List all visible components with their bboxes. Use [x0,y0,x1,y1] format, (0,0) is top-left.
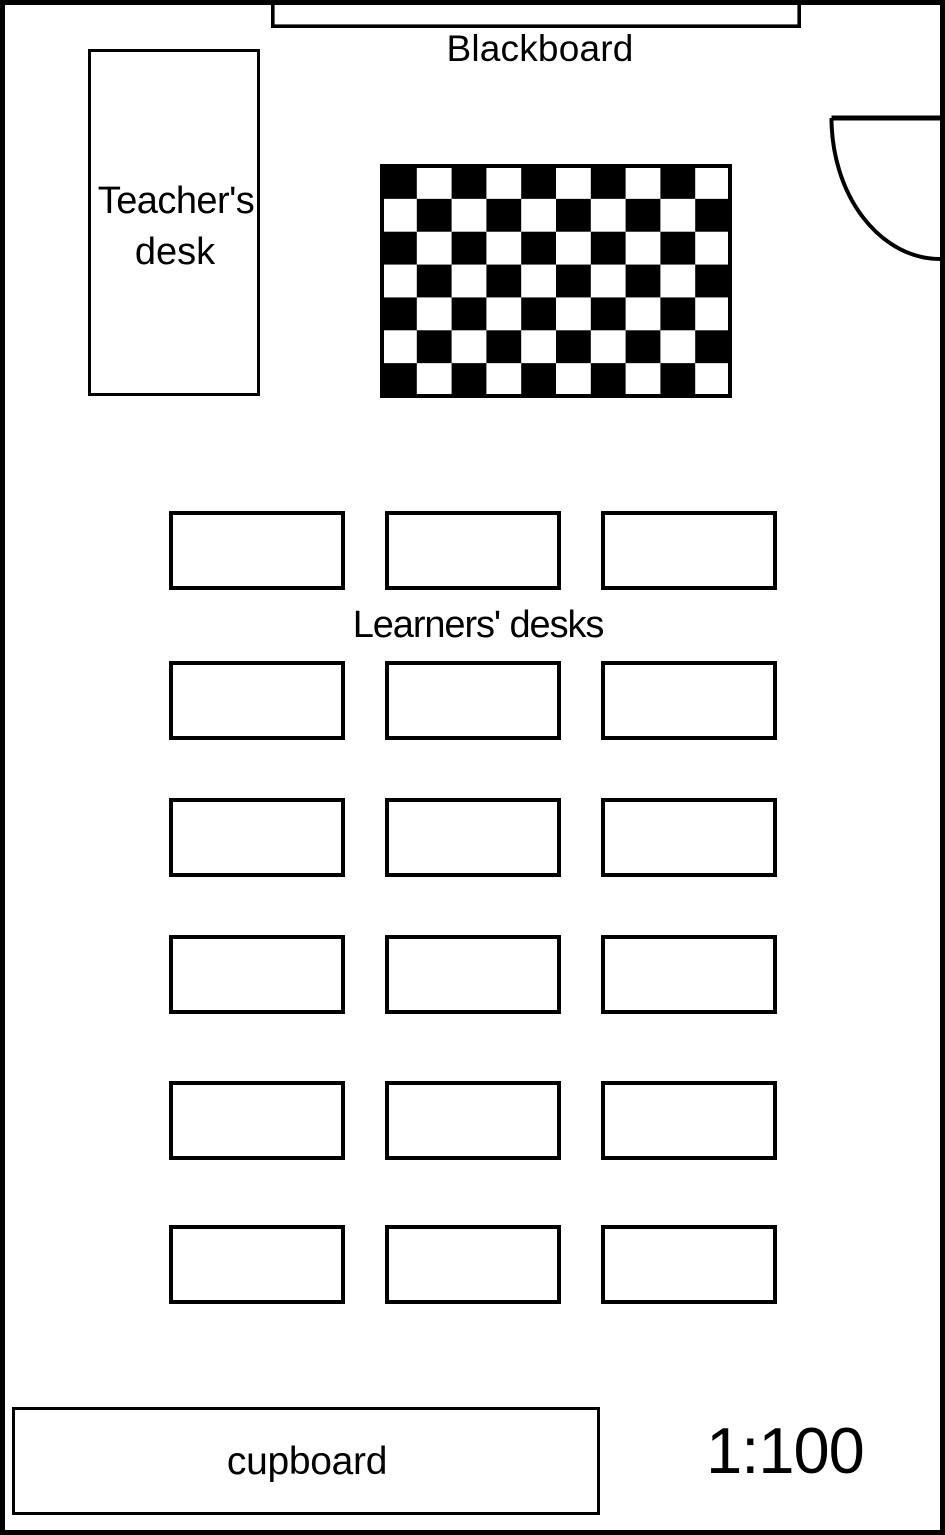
svg-text:Teacher's: Teacher's [98,180,255,222]
svg-text:1:100: 1:100 [706,1414,864,1487]
svg-text:desk: desk [135,231,216,273]
svg-text:Learners' desks: Learners' desks [353,604,604,646]
svg-text:Blackboard: Blackboard [446,28,633,69]
svg-text:cupboard: cupboard [227,1440,387,1483]
